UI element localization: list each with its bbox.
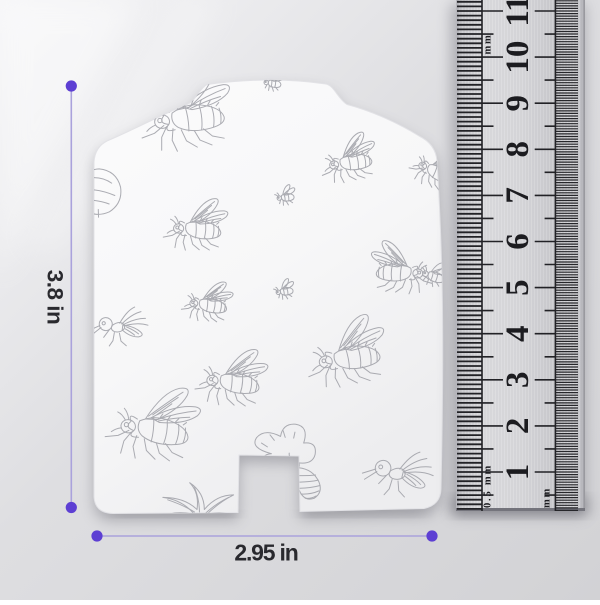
svg-text:8: 8	[500, 141, 536, 158]
svg-text:mm: mm	[542, 487, 553, 508]
svg-text:1: 1	[500, 464, 536, 481]
svg-text:2.95 in: 2.95 in	[234, 540, 297, 566]
svg-text:4: 4	[500, 325, 536, 342]
svg-text:2: 2	[500, 418, 536, 435]
svg-text:6: 6	[500, 233, 536, 250]
svg-text:mm: mm	[483, 33, 494, 54]
svg-text:9: 9	[500, 95, 536, 112]
svg-text:10: 10	[500, 41, 536, 74]
svg-text:0.5 mm: 0.5 mm	[483, 464, 494, 508]
svg-text:5: 5	[500, 279, 536, 296]
svg-text:3: 3	[500, 372, 536, 389]
svg-text:11: 11	[500, 0, 536, 27]
svg-text:3.8 in: 3.8 in	[43, 270, 68, 325]
svg-text:7: 7	[500, 187, 536, 204]
